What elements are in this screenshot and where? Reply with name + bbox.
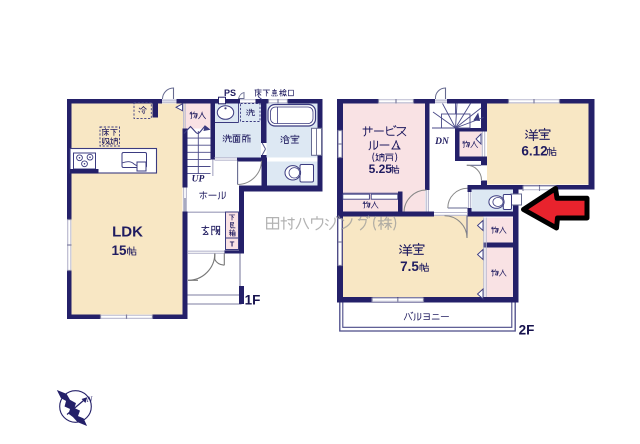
svg-text:7.5: 7.5 — [400, 259, 419, 274]
svg-text:LDK: LDK — [112, 224, 143, 241]
svg-text:PS: PS — [224, 88, 236, 98]
svg-text:1F: 1F — [245, 293, 261, 308]
svg-text:DN: DN — [434, 137, 450, 147]
svg-text:N: N — [86, 395, 94, 404]
svg-text:2F: 2F — [519, 323, 535, 338]
svg-text:5.25: 5.25 — [369, 162, 393, 176]
svg-text:UP: UP — [192, 175, 205, 185]
svg-text:15: 15 — [111, 243, 127, 258]
svg-text:T: T — [230, 240, 235, 249]
svg-text:6.12: 6.12 — [521, 143, 547, 158]
